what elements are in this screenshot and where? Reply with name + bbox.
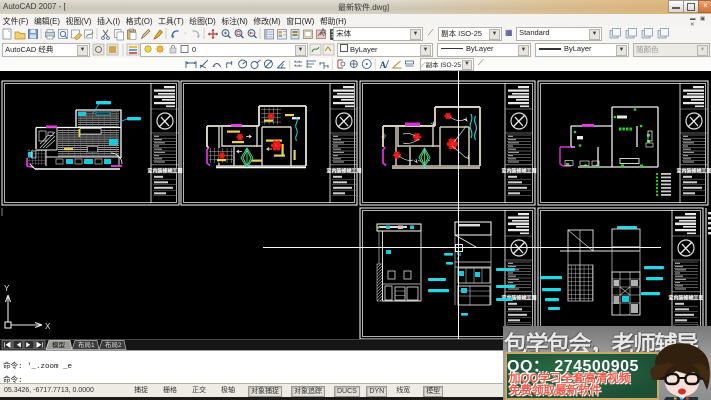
svg-text:室内装修竣工图: 室内装修竣工图 xyxy=(326,167,361,174)
svg-text:室内装修竣工图: 室内装修竣工图 xyxy=(668,294,703,301)
svg-text:Y: Y xyxy=(4,284,10,293)
svg-text:室内装修竣工图: 室内装修竣工图 xyxy=(147,167,182,174)
svg-text:室内装修竣工图: 室内装修竣工图 xyxy=(676,167,711,174)
svg-text:布局1: 布局1 xyxy=(78,340,95,349)
svg-text:室内装修竣工图: 室内装修竣工图 xyxy=(501,167,536,174)
svg-text:32: 32 xyxy=(381,132,388,139)
svg-text:X: X xyxy=(45,322,51,331)
svg-text:布局2: 布局2 xyxy=(105,340,122,349)
svg-text:·: · xyxy=(184,30,186,37)
svg-text:0: 0 xyxy=(192,45,196,54)
svg-text:模型: 模型 xyxy=(52,340,66,349)
svg-text:A: A xyxy=(380,60,387,70)
